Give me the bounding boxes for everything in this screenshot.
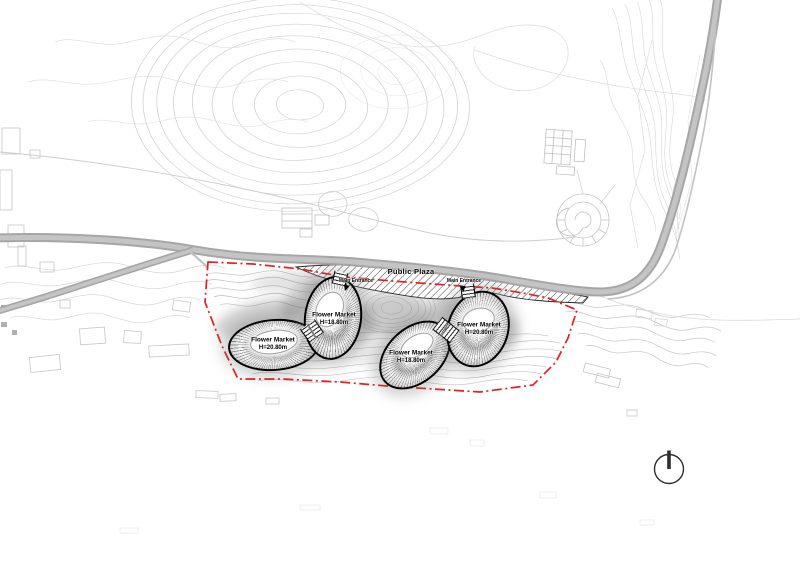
public-plaza-label: Public Plaza bbox=[388, 268, 435, 277]
main-road bbox=[0, 0, 718, 312]
building-east-height: H=20.80m bbox=[457, 328, 501, 335]
spiral-garden bbox=[556, 170, 615, 246]
main-entrance-label-east: Main Entrance bbox=[447, 278, 481, 284]
building-east-label: Flower Market H=20.80m bbox=[457, 321, 501, 336]
building-west-height: H=20.80m bbox=[251, 343, 295, 350]
main-entrance-label-west: Main Entrance bbox=[339, 278, 373, 284]
building-north-label: Flower Market H=18.80m bbox=[312, 311, 356, 326]
north-indicator bbox=[650, 448, 688, 488]
building-south-height: H=18.80m bbox=[389, 356, 433, 363]
site-plan: Entrance Entrance Public Plaza Main Entr… bbox=[0, 0, 800, 565]
main-entrance-arrow-east bbox=[460, 286, 467, 293]
building-north-height: H=18.80m bbox=[312, 318, 356, 325]
north-indicator-needle bbox=[667, 451, 671, 470]
building-west-label: Flower Market H=20.80m bbox=[251, 336, 295, 351]
main-entrance-arrow-west bbox=[342, 284, 349, 291]
building-south-label: Flower Market H=18.80m bbox=[389, 349, 433, 364]
